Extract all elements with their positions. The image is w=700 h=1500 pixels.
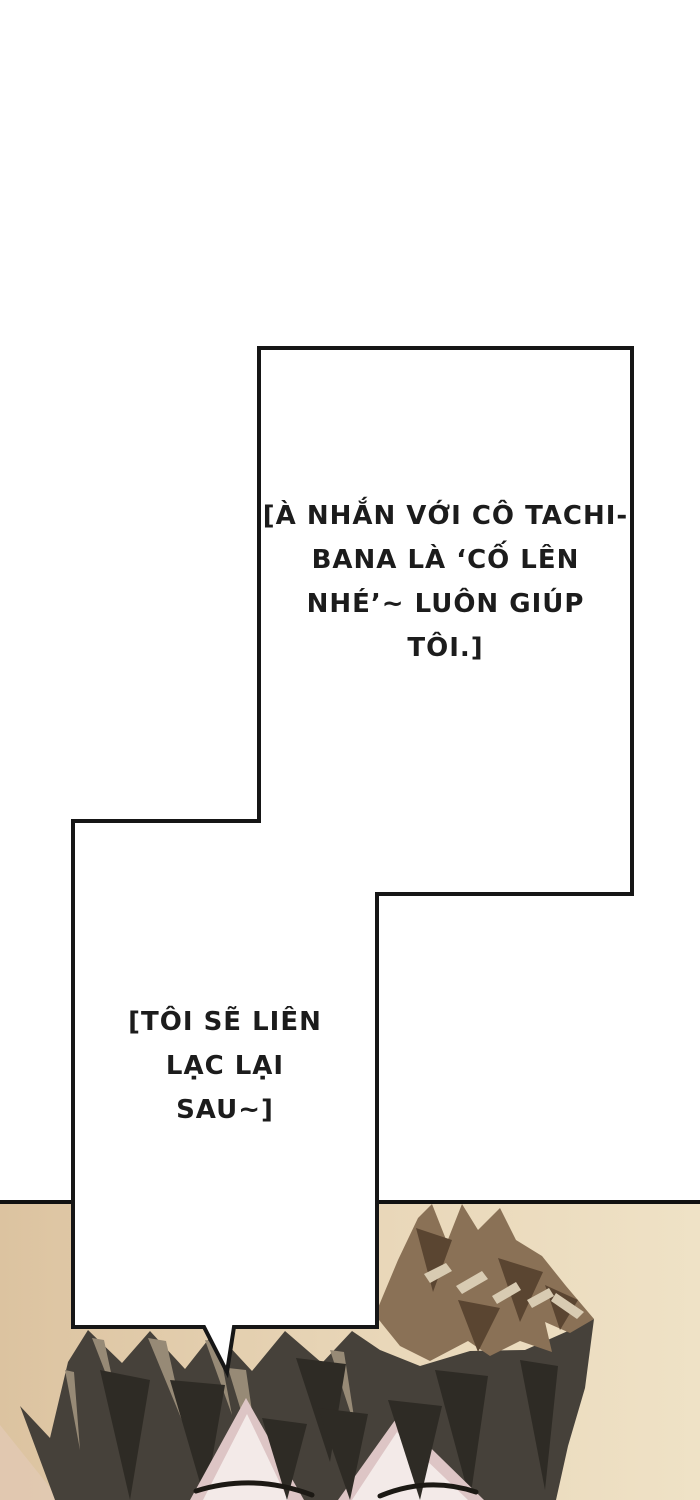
dialogue-text-2: [TÔI SẼ LIÊN LẠC LẠI SAU~]: [73, 1000, 377, 1132]
dialogue-text-1: [À NHẮN VỚI CÔ TACHI- BANA LÀ ‘CỐ LÊN NH…: [259, 494, 632, 670]
speech-bubble: [0, 0, 700, 1500]
comic-page: [À NHẮN VỚI CÔ TACHI- BANA LÀ ‘CỐ LÊN NH…: [0, 0, 700, 1500]
